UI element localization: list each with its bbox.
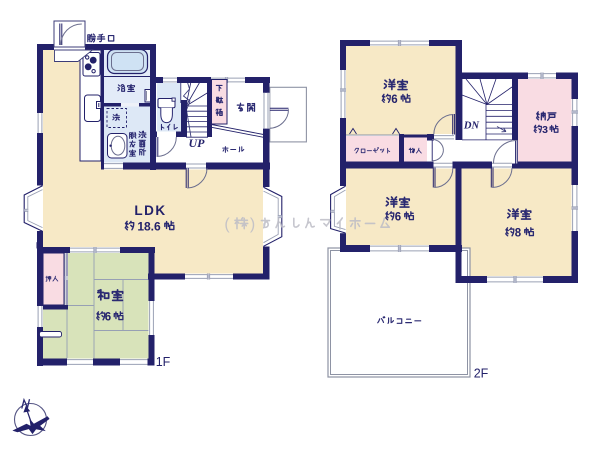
svg-text:): ) bbox=[250, 216, 255, 233]
svg-text:UP: UP bbox=[189, 136, 206, 150]
svg-text:6: 6 bbox=[395, 211, 401, 223]
svg-text:DN: DN bbox=[463, 121, 480, 132]
svg-text:6: 6 bbox=[391, 94, 397, 106]
svg-text:(: ( bbox=[224, 216, 230, 233]
svg-text:2F: 2F bbox=[474, 367, 489, 381]
svg-text:LDK: LDK bbox=[134, 203, 166, 218]
svg-text:18.6: 18.6 bbox=[137, 220, 161, 234]
svg-text:6: 6 bbox=[105, 311, 111, 323]
svg-text:3: 3 bbox=[542, 124, 548, 136]
svg-text:1F: 1F bbox=[156, 355, 171, 369]
svg-text:8: 8 bbox=[515, 227, 522, 239]
